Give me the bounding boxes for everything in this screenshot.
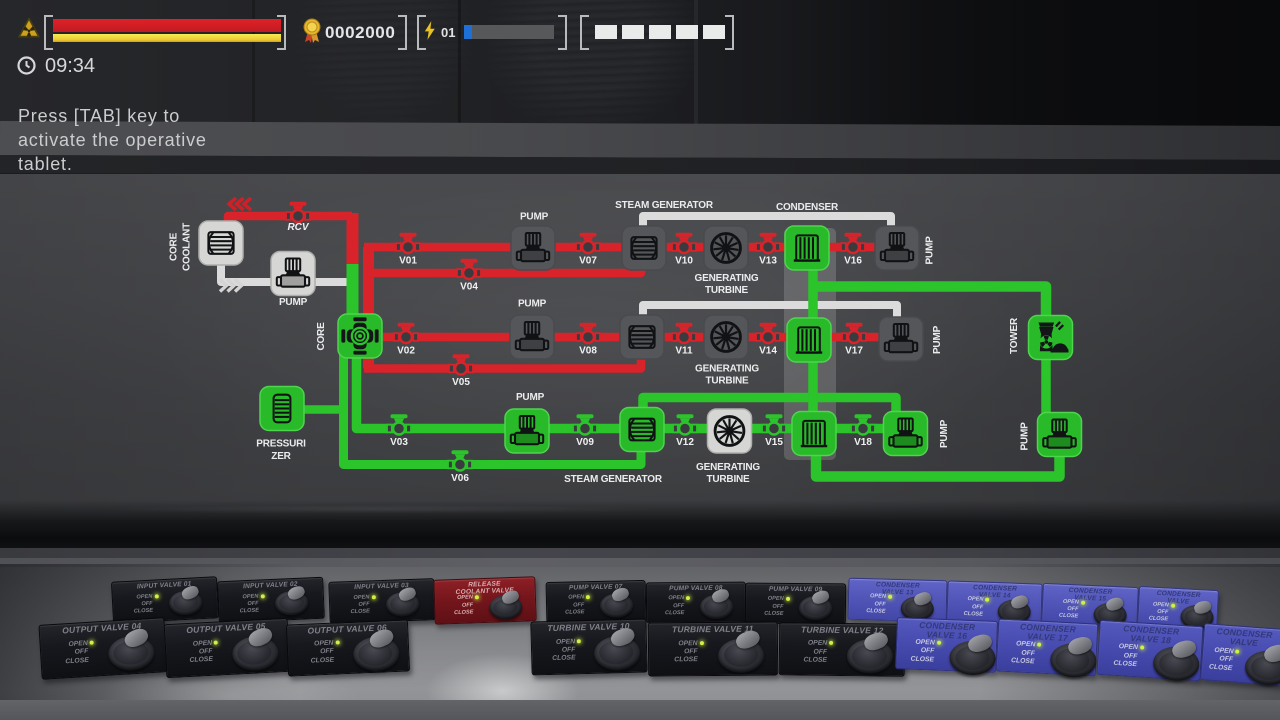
svg-text:TURBINE: TURBINE [705, 376, 749, 387]
svg-text:V17: V17 [845, 346, 863, 357]
svg-text:CORE: CORE [316, 322, 327, 351]
svg-text:PUMP: PUMP [520, 212, 549, 223]
svg-text:PRESSURI: PRESSURI [256, 439, 306, 450]
svg-text:CORE: CORE [169, 232, 180, 261]
svg-text:GENERATING: GENERATING [695, 364, 759, 375]
svg-text:GENERATING: GENERATING [696, 462, 760, 473]
svg-text:COOLANT: COOLANT [182, 223, 193, 271]
svg-text:V18: V18 [854, 437, 872, 448]
svg-text:TOWER: TOWER [1009, 317, 1020, 354]
svg-text:V01: V01 [399, 256, 417, 267]
svg-text:V16: V16 [844, 256, 862, 267]
svg-text:V13: V13 [759, 256, 777, 267]
svg-text:TURBINE: TURBINE [705, 285, 749, 296]
svg-text:RCV: RCV [287, 222, 309, 233]
svg-text:PUMP: PUMP [925, 236, 936, 265]
svg-text:V09: V09 [576, 437, 594, 448]
svg-text:V02: V02 [397, 346, 415, 357]
svg-text:PUMP: PUMP [1020, 422, 1031, 451]
svg-text:PUMP: PUMP [932, 325, 943, 354]
svg-text:PUMP: PUMP [518, 299, 547, 310]
svg-text:PUMP: PUMP [279, 297, 308, 308]
svg-text:STEAM GENERATOR: STEAM GENERATOR [564, 474, 663, 485]
svg-text:V05: V05 [452, 377, 470, 388]
svg-text:V07: V07 [579, 256, 597, 267]
svg-text:V12: V12 [676, 437, 694, 448]
svg-text:V03: V03 [390, 437, 408, 448]
svg-text:V08: V08 [579, 346, 597, 357]
svg-text:V11: V11 [675, 346, 693, 357]
svg-text:STEAM GENERATOR: STEAM GENERATOR [615, 200, 714, 211]
svg-text:V06: V06 [451, 473, 469, 484]
svg-text:TURBINE: TURBINE [706, 474, 750, 485]
svg-text:CONDENSER: CONDENSER [776, 202, 839, 213]
svg-text:PUMP: PUMP [939, 419, 950, 448]
svg-text:ZER: ZER [271, 451, 291, 462]
svg-text:PUMP: PUMP [516, 392, 545, 403]
svg-text:V14: V14 [759, 346, 777, 357]
svg-text:GENERATING: GENERATING [695, 273, 759, 284]
svg-text:V04: V04 [460, 282, 478, 293]
svg-text:V15: V15 [765, 437, 783, 448]
svg-text:V10: V10 [675, 256, 693, 267]
